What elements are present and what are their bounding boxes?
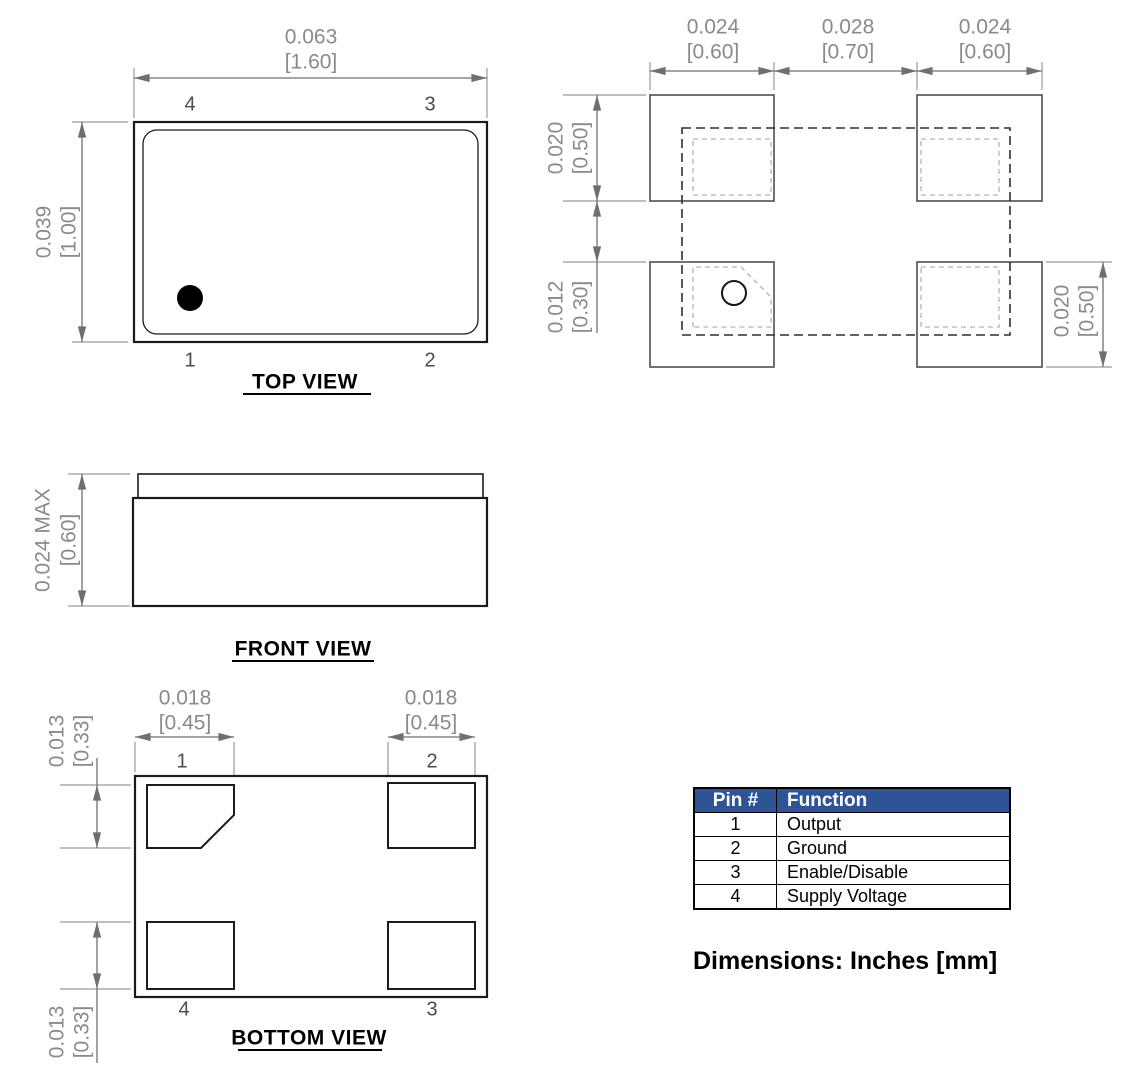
top-view-height-mm: [1.00] xyxy=(58,206,81,259)
land-pad-top-right xyxy=(917,95,1042,201)
bottom-top-pad-height-mm: [0.33] xyxy=(71,715,94,768)
pin-table-header-function: Function xyxy=(777,788,1011,813)
land-row-gap-inches: 0.012 xyxy=(545,281,568,334)
pin-function-cell: Supply Voltage xyxy=(777,885,1011,910)
package-drawing-page: 0.063 [1.60] 0.039 [1.00] 4 3 1 2 TOP VI… xyxy=(0,0,1130,1084)
bottom-view-top-pad-height-dimension: 0.013 [0.33] xyxy=(46,715,131,848)
bottom-pad-3 xyxy=(388,922,475,989)
package-pad-dashed-bottom-right xyxy=(921,267,999,327)
bottom-view-pin1-label: 1 xyxy=(176,750,187,772)
pin-number-cell: 1 xyxy=(694,813,777,837)
pin-function-table: Pin # Function 1 Output 2 Ground 3 Enabl… xyxy=(693,787,1011,910)
bottom-view-pin4-label: 4 xyxy=(178,998,189,1020)
land-pad-bottom-right xyxy=(917,262,1042,367)
table-row: 3 Enable/Disable xyxy=(694,861,1010,885)
mechanical-drawing: 0.063 [1.60] 0.039 [1.00] 4 3 1 2 TOP VI… xyxy=(0,0,1130,1084)
pin-table-header-pin: Pin # xyxy=(694,788,777,813)
top-view-pin3-label: 3 xyxy=(424,93,435,115)
bottom-bottom-pad-height-inches: 0.013 xyxy=(46,1006,69,1059)
land-right-pad-width-mm: [0.60] xyxy=(959,41,1012,64)
pin-table-header-row: Pin # Function xyxy=(694,788,1010,813)
land-pad-bottom-left xyxy=(650,262,774,367)
bottom-left-pad-width-inches: 0.018 xyxy=(159,687,212,710)
pin-function-cell: Ground xyxy=(777,837,1011,861)
bottom-view-pin2-label: 2 xyxy=(426,750,437,772)
bottom-view-bottom-pad-height-dimension: 0.013 [0.33] xyxy=(46,922,131,1063)
land-right-pad-width-inches: 0.024 xyxy=(959,16,1012,39)
bottom-top-pad-height-inches: 0.013 xyxy=(46,715,69,768)
bottom-left-pad-width-mm: [0.45] xyxy=(159,712,212,735)
land-left-pad-width-inches: 0.024 xyxy=(687,16,740,39)
front-view-lid xyxy=(138,474,483,498)
top-view-pin4-label: 4 xyxy=(184,93,195,115)
top-view: 0.063 [1.60] 0.039 [1.00] 4 3 1 2 TOP VI… xyxy=(33,26,487,394)
land-pad-height-inches: 0.020 xyxy=(545,122,568,175)
top-view-pin2-label: 2 xyxy=(424,349,435,371)
land-right-pad-height-mm: [0.50] xyxy=(1076,285,1099,338)
land-pattern-top-dimensions: 0.024 [0.60] 0.028 [0.70] 0.024 [0.60] xyxy=(650,16,1042,90)
package-pad-dashed-top-left xyxy=(693,139,771,195)
table-row: 2 Ground xyxy=(694,837,1010,861)
pin1-marker-circle xyxy=(722,281,746,305)
bottom-right-pad-width-inches: 0.018 xyxy=(405,687,458,710)
table-row: 4 Supply Voltage xyxy=(694,885,1010,910)
land-left-pad-width-mm: [0.60] xyxy=(687,41,740,64)
bottom-pad-2 xyxy=(388,783,475,848)
front-view-title: FRONT VIEW xyxy=(235,638,372,661)
pin-function-cell: Enable/Disable xyxy=(777,861,1011,885)
land-pad-top-left xyxy=(650,95,774,201)
land-right-pad-height-inches: 0.020 xyxy=(1051,285,1074,338)
front-view-body xyxy=(133,498,487,606)
dimensions-caption: Dimensions: Inches [mm] xyxy=(693,947,997,976)
pin-function-cell: Output xyxy=(777,813,1011,837)
bottom-pad-4 xyxy=(147,922,234,989)
top-view-width-inches: 0.063 xyxy=(285,26,338,49)
top-view-pin1-label: 1 xyxy=(184,349,195,371)
front-view: 0.024 MAX [0.60] FRONT VIEW xyxy=(32,474,487,661)
land-pattern-left-dimensions: 0.020 [0.50] 0.012 [0.30] xyxy=(545,95,646,333)
pin-number-cell: 3 xyxy=(694,861,777,885)
top-view-width-mm: [1.60] xyxy=(285,51,338,74)
land-pattern: 0.024 [0.60] 0.028 [0.70] 0.024 [0.60] 0… xyxy=(545,16,1112,367)
land-row-gap-mm: [0.30] xyxy=(570,281,593,334)
bottom-view: 0.018 [0.45] 0.018 [0.45] 0.013 [0.33] 0… xyxy=(46,687,487,1063)
bottom-view-pin3-label: 3 xyxy=(426,998,437,1020)
top-view-height-dimension: 0.039 [1.00] xyxy=(33,122,128,342)
top-view-height-inches: 0.039 xyxy=(33,206,56,259)
pin1-indicator-dot xyxy=(177,285,203,311)
front-view-height-inches: 0.024 MAX xyxy=(32,488,55,592)
table-row: 1 Output xyxy=(694,813,1010,837)
pin-number-cell: 4 xyxy=(694,885,777,910)
pin-number-cell: 2 xyxy=(694,837,777,861)
bottom-bottom-pad-height-mm: [0.33] xyxy=(71,1006,94,1059)
bottom-view-title: BOTTOM VIEW xyxy=(231,1027,387,1050)
package-pad-dashed-top-right xyxy=(921,139,999,195)
land-center-gap-inches: 0.028 xyxy=(822,16,875,39)
front-view-height-mm: [0.60] xyxy=(58,514,81,567)
land-pattern-right-dimension: 0.020 [0.50] xyxy=(1046,262,1112,367)
bottom-right-pad-width-mm: [0.45] xyxy=(405,712,458,735)
land-pad-height-mm: [0.50] xyxy=(570,122,593,175)
front-view-height-dimension: 0.024 MAX [0.60] xyxy=(32,474,130,606)
land-center-gap-mm: [0.70] xyxy=(822,41,875,64)
top-view-title: TOP VIEW xyxy=(252,371,358,394)
